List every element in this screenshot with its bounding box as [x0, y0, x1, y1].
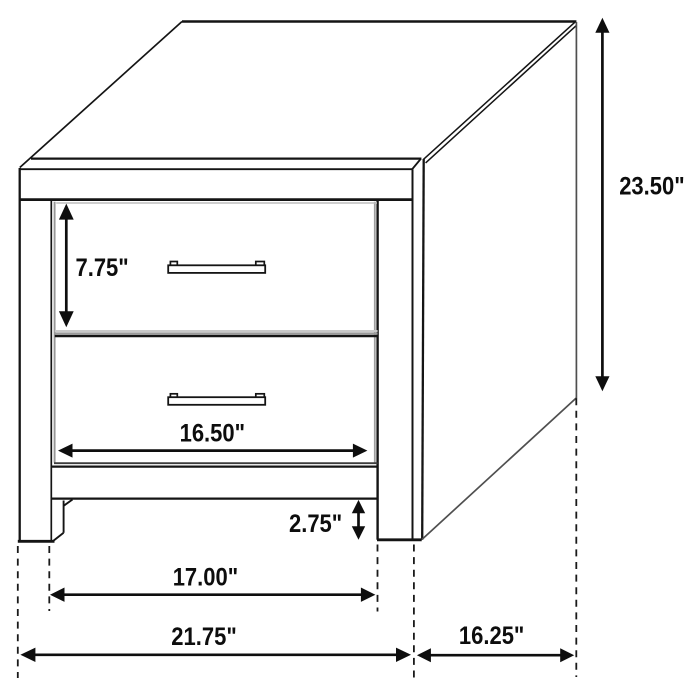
svg-text:16.25": 16.25": [459, 622, 524, 650]
svg-text:21.75": 21.75": [171, 623, 236, 651]
svg-text:16.50": 16.50": [180, 419, 245, 447]
svg-text:23.50": 23.50": [619, 172, 684, 200]
svg-text:2.75": 2.75": [289, 510, 342, 538]
svg-text:17.00": 17.00": [173, 563, 238, 591]
svg-text:7.75": 7.75": [76, 254, 129, 282]
